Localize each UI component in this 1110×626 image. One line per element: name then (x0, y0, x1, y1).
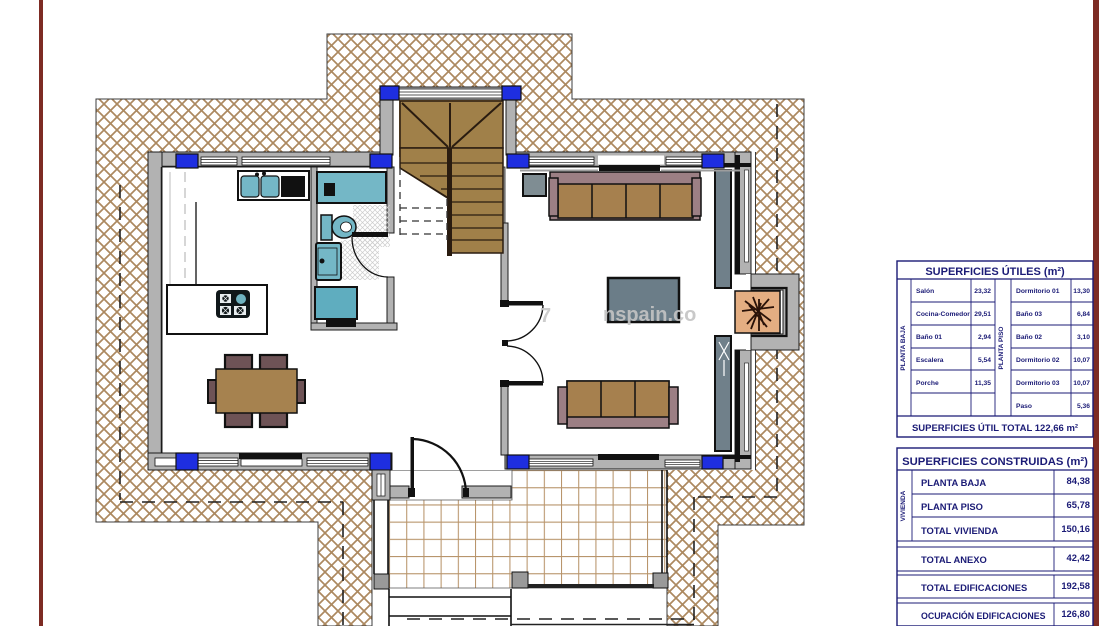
svg-text:Dormitorio 02: Dormitorio 02 (1016, 357, 1060, 364)
svg-text:SUPERFICIES CONSTRUIDAS (m²): SUPERFICIES CONSTRUIDAS (m²) (902, 456, 1088, 468)
svg-text:11,35: 11,35 (975, 380, 992, 387)
svg-text:Dormitorio 03: Dormitorio 03 (1016, 380, 1060, 387)
svg-text:2,94: 2,94 (978, 334, 991, 341)
svg-text:6,84: 6,84 (1077, 311, 1090, 318)
svg-text:Cocina-Comedor: Cocina-Comedor (916, 311, 970, 318)
svg-text:Escalera: Escalera (916, 357, 944, 364)
svg-text:42,42: 42,42 (1067, 552, 1090, 563)
svg-text:Porche: Porche (916, 380, 939, 387)
svg-text:84,38: 84,38 (1067, 475, 1090, 486)
svg-text:Salón: Salón (916, 288, 934, 295)
svg-text:150,16: 150,16 (1061, 523, 1090, 534)
svg-text:10,07: 10,07 (1073, 357, 1090, 364)
svg-text:126,80: 126,80 (1061, 608, 1090, 619)
svg-text:SUPERFICIES ÚTIL TOTAL 122,66: SUPERFICIES ÚTIL TOTAL 122,66 m² (912, 422, 1078, 434)
svg-text:Baño 03: Baño 03 (1016, 311, 1042, 318)
svg-text:PLANTA BAJA: PLANTA BAJA (921, 477, 986, 488)
svg-text:Paso: Paso (1016, 403, 1032, 410)
svg-text:SUPERFICIES ÚTILES (m²): SUPERFICIES ÚTILES (m²) (925, 265, 1065, 278)
svg-text:TOTAL ANEXO: TOTAL ANEXO (921, 554, 987, 565)
svg-text:7: 7 (540, 305, 551, 327)
svg-text:13,30: 13,30 (1073, 288, 1090, 295)
svg-text:65,78: 65,78 (1067, 499, 1090, 510)
svg-text:TOTAL EDIFICACIONES: TOTAL EDIFICACIONES (921, 582, 1027, 593)
svg-text:TOTAL VIVIENDA: TOTAL VIVIENDA (921, 525, 998, 536)
svg-text:23,32: 23,32 (974, 288, 991, 295)
svg-text:OCUPACIÓN EDIFICACIONES: OCUPACIÓN EDIFICACIONES (921, 610, 1046, 621)
svg-text:10,07: 10,07 (1073, 380, 1090, 387)
svg-text:Dormitorio 01: Dormitorio 01 (1016, 288, 1060, 295)
svg-text:192,58: 192,58 (1061, 580, 1090, 591)
svg-text:29,51: 29,51 (974, 311, 991, 318)
svg-text:3,10: 3,10 (1077, 334, 1090, 341)
svg-text:Baño 01: Baño 01 (916, 334, 942, 341)
svg-text:PLANTA PISO: PLANTA PISO (921, 501, 983, 512)
svg-text:5,54: 5,54 (978, 357, 991, 364)
svg-text:PLANTA BAJA: PLANTA BAJA (900, 325, 907, 370)
svg-text:PLANTA PISO: PLANTA PISO (998, 327, 1005, 370)
svg-text:VIVIENDA: VIVIENDA (900, 490, 907, 521)
svg-text:Baño 02: Baño 02 (1016, 334, 1042, 341)
svg-text:nspain.co: nspain.co (603, 304, 696, 326)
svg-text:5,36: 5,36 (1077, 403, 1090, 410)
